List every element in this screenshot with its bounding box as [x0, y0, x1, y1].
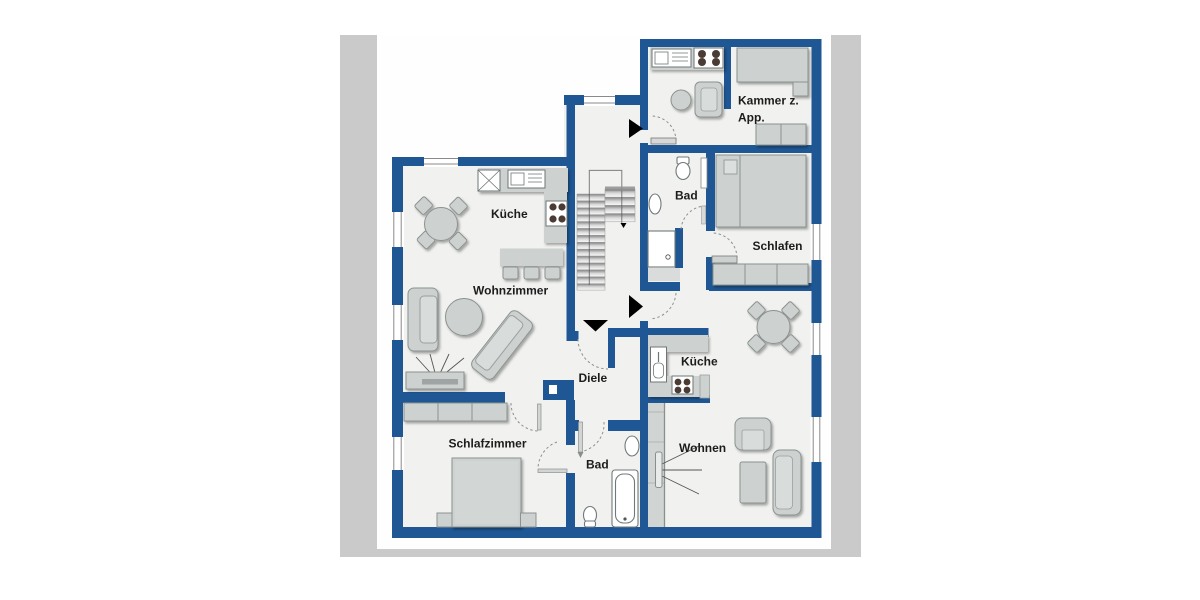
svg-text:Bad: Bad [675, 189, 698, 203]
svg-text:Schlafzimmer: Schlafzimmer [449, 437, 527, 451]
svg-text:Kammer z.: Kammer z. [738, 93, 799, 107]
svg-text:Bad: Bad [586, 458, 609, 472]
svg-text:Diele: Diele [579, 371, 608, 385]
svg-text:Wohnzimmer: Wohnzimmer [473, 284, 548, 298]
svg-text:Schlafen: Schlafen [753, 239, 803, 253]
svg-text:App.: App. [738, 111, 765, 125]
svg-text:Wohnen: Wohnen [679, 441, 726, 455]
svg-text:Küche: Küche [681, 355, 718, 369]
svg-text:Küche: Küche [491, 207, 528, 221]
